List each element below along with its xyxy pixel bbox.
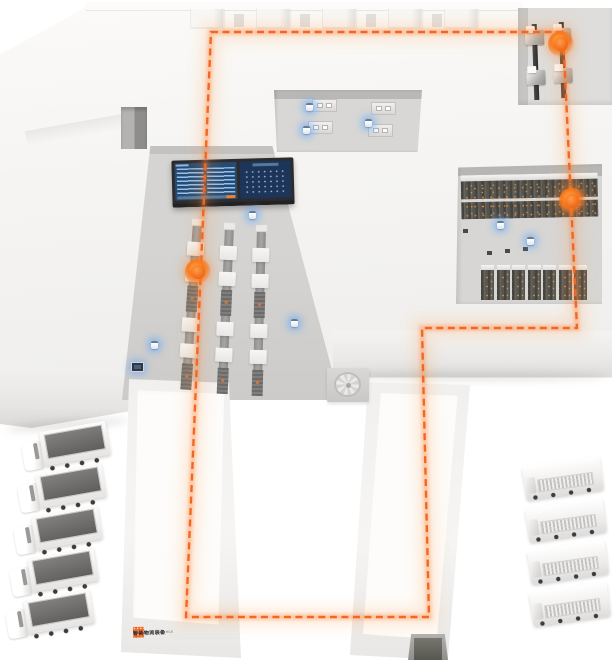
small-storage-rack (497, 265, 510, 300)
route-marker-rack-aisle-stop (559, 188, 585, 214)
rack-goods-dots (574, 270, 587, 300)
roof-vent (366, 14, 376, 27)
small-storage-rack (559, 265, 572, 300)
conveyor-station (180, 343, 198, 358)
data-rows (207, 167, 235, 194)
desk-monitor (326, 103, 332, 108)
carton-dot (185, 375, 188, 378)
dashboard-map-panel (239, 160, 291, 198)
agv-robot-indicator (497, 221, 504, 229)
desk-monitor (322, 125, 328, 130)
roof-skylight (322, 8, 356, 28)
ground-shadow (335, 372, 607, 381)
desk-monitor (376, 106, 382, 111)
control-dashboard (171, 157, 294, 207)
rack-goods-dots (497, 270, 510, 300)
agv-robot-indicator (303, 126, 310, 134)
conveyor-roller (180, 363, 193, 390)
dock-door (408, 634, 448, 660)
machine-cap (527, 66, 536, 73)
small-storage-rack (528, 265, 541, 300)
conveyor-roller (254, 292, 266, 318)
machine-unit (553, 68, 573, 84)
route-marker-conveyor-stop (185, 259, 211, 285)
marker-core (565, 194, 579, 208)
desk-monitor (373, 128, 379, 133)
panel-footer (177, 195, 235, 200)
box-truck (529, 582, 611, 627)
workstation-desk (308, 121, 333, 134)
machine-unit (526, 70, 546, 86)
machine-cap (526, 26, 535, 33)
floor-bin (505, 249, 510, 253)
conveyor-station (250, 324, 267, 338)
conveyor-station (251, 274, 268, 288)
data-rows (176, 168, 204, 195)
agv-robot-indicator (249, 211, 256, 219)
conveyor-roller (186, 285, 199, 312)
marker-core (191, 265, 205, 279)
box-truck (522, 456, 604, 501)
trailer-cargo (28, 592, 90, 627)
route-marker-machine-cell-stop (548, 31, 574, 57)
carton-dot (221, 379, 224, 382)
footer-accent-chip (226, 195, 235, 198)
truck-windshield (25, 527, 32, 543)
conveyor-station (216, 322, 234, 337)
processing-machine-line (525, 24, 548, 101)
workstation-desk (371, 102, 396, 115)
roof-skylight (388, 8, 422, 28)
facility-illustration: 智能物流装备 INTELLIGENT LOGISTICS (0, 0, 615, 662)
trailer-cargo (44, 424, 106, 459)
conveyor-head (191, 218, 205, 227)
conveyor-station (187, 241, 205, 256)
right-dock-roof-panel (349, 381, 471, 662)
roof-skylight (444, 8, 478, 28)
machine-cap (554, 64, 563, 71)
conveyor-station (249, 350, 266, 364)
box-truck (525, 498, 607, 543)
carton-dot (191, 297, 194, 300)
conveyor-station (215, 348, 233, 363)
left-dock-building (118, 377, 242, 660)
conveyor-roller (252, 370, 264, 396)
machine-unit (525, 30, 545, 46)
carton-dot (258, 303, 261, 306)
conveyor-station (220, 246, 238, 261)
agv-robot-indicator (306, 103, 313, 111)
monitor-screen (134, 365, 141, 369)
truck-windshield (29, 485, 36, 501)
rack-goods-dots (543, 270, 556, 300)
truck-windshield (21, 569, 28, 585)
desk-monitor (382, 128, 388, 133)
workstation-desk (312, 99, 337, 112)
carton-dot (225, 301, 228, 304)
agv-robot-indicator (365, 119, 372, 127)
roof-vent (432, 14, 442, 27)
fan-hub (346, 383, 351, 388)
rack-goods-dots (528, 270, 541, 300)
conveyor-station (252, 248, 269, 262)
map-dots (244, 168, 288, 194)
rack-goods-dots (512, 270, 525, 300)
conveyor-head (255, 224, 268, 232)
desk-monitor (313, 125, 319, 130)
floor-monitor-device (131, 362, 144, 372)
rooftop-fan-platform (327, 368, 369, 402)
right-dock-building (349, 381, 471, 662)
panel-title-bar (252, 163, 278, 167)
roof-opening (121, 107, 147, 149)
slab-front-face-right (333, 331, 612, 377)
conveyor-line (252, 228, 267, 380)
small-storage-rack (512, 265, 525, 300)
small-storage-rack (574, 265, 587, 300)
trailer-cargo (40, 466, 102, 501)
conveyor-station (181, 317, 199, 332)
conveyor-station (218, 272, 236, 287)
dock-door-opening (414, 638, 442, 660)
left-dock-roof-panel (132, 389, 228, 627)
truck-windshield (17, 611, 24, 627)
roof-skylight (190, 8, 224, 28)
rack-goods-dots (559, 270, 572, 300)
desk-monitor (317, 103, 323, 108)
trailer-cargo (32, 550, 94, 585)
dashboard-table-panel (174, 162, 237, 201)
carton-dot (256, 381, 259, 384)
roof-skylight (256, 8, 290, 28)
workstation-bay (274, 90, 422, 152)
panel-header (176, 164, 188, 166)
conveyor-roller (220, 290, 232, 316)
floor-bin (463, 229, 468, 233)
agv-robot-indicator (151, 341, 158, 349)
small-storage-rack (543, 265, 556, 300)
rack-goods-dots (481, 270, 494, 300)
floor-bin (487, 251, 492, 255)
conveyor-roller (217, 368, 229, 394)
agv-robot-indicator (291, 319, 298, 327)
box-truck (527, 540, 609, 585)
conveyor-head (223, 222, 236, 231)
agv-robot-indicator (527, 237, 534, 245)
roof-vent (300, 14, 310, 27)
truck-windshield (33, 443, 40, 459)
marker-core (554, 37, 568, 51)
small-storage-rack (481, 265, 494, 300)
desk-monitor (385, 106, 391, 111)
trailer-cargo (36, 508, 98, 543)
floor-bin (523, 247, 528, 251)
roof-vent (234, 14, 244, 27)
